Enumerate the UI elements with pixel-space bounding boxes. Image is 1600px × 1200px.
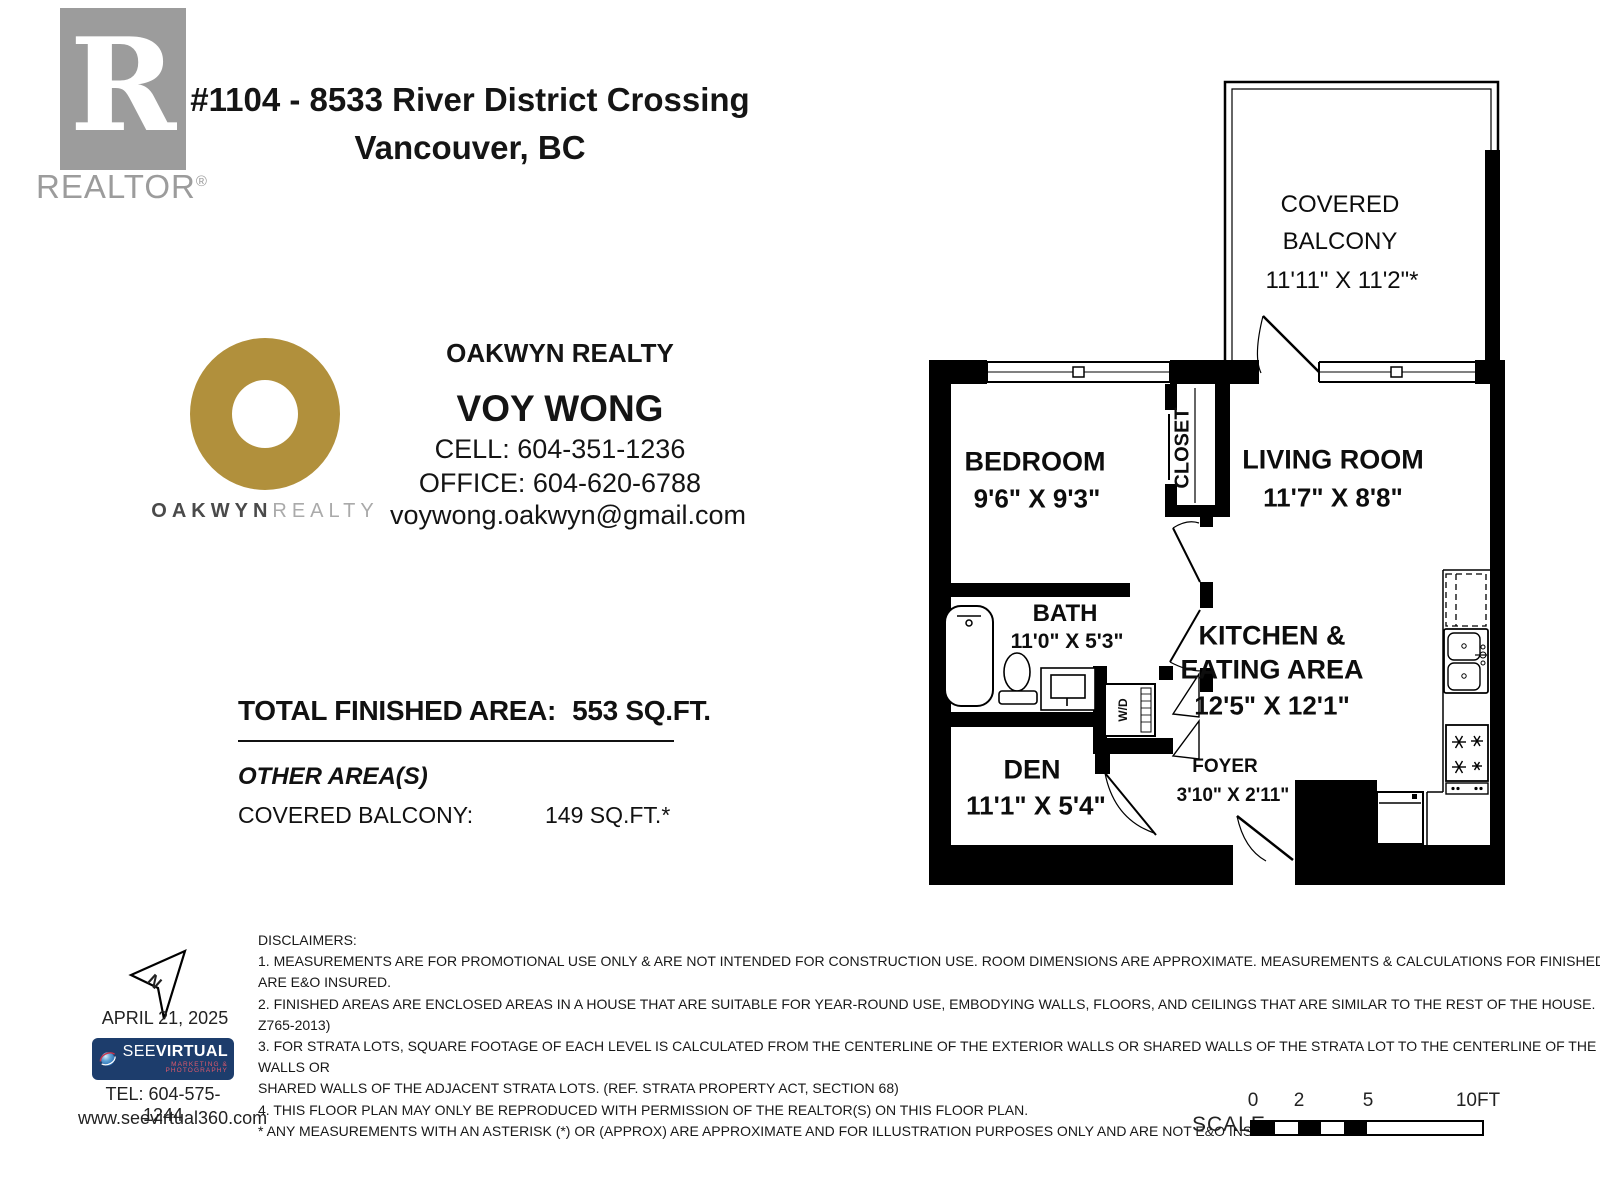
washer-dryer-label: W/D: [1116, 698, 1130, 721]
bath-label: BATH: [1033, 600, 1098, 628]
disclaimer-line: WALLS OR: [258, 1057, 1600, 1078]
registered-mark: ®: [196, 173, 208, 190]
agent-office-phone: OFFICE: 604-620-6788: [390, 468, 730, 499]
disclaimer-line: DISCLAIMERS:: [258, 930, 1600, 951]
floorplan-flyer: { "header": { "realtor_letter": "R", "re…: [0, 0, 1600, 1200]
disclaimer-line: Z765-2013): [258, 1015, 1600, 1036]
listing-city: Vancouver, BC: [170, 124, 770, 172]
seevirtual-swoosh-icon: [98, 1043, 118, 1075]
den-label: DEN: [1003, 755, 1060, 786]
scale-tick-2: 2: [1294, 1090, 1305, 1112]
other-areas-heading: OTHER AREA(S): [238, 763, 428, 791]
balcony-label-1: COVERED: [1281, 191, 1400, 219]
scale-segment: [1344, 1122, 1367, 1134]
kitchen-cabinet: [1446, 574, 1486, 626]
closet-label: CLOSET: [1172, 407, 1195, 488]
seevirtual-logo: SEEVIRTUAL MARKETING & PHOTOGRAPHY: [92, 1038, 234, 1080]
bathtub: [945, 606, 993, 706]
foyer-label: FOYER: [1192, 756, 1257, 778]
disclaimers: DISCLAIMERS: 1. MEASUREMENTS ARE FOR PRO…: [258, 930, 1600, 1142]
total-area-value: 553 SQ.FT.: [572, 695, 711, 726]
scale-tick-0: 0: [1248, 1090, 1259, 1112]
realtor-logo: R: [60, 8, 186, 170]
kitchen-label-2: EATING AREA: [1180, 655, 1363, 686]
floorplan: COVERED BALCONY 11'11" X 11'2"* BEDROOM …: [915, 70, 1505, 885]
bedroom-label: BEDROOM: [965, 447, 1106, 478]
covered-balcony-label: COVERED BALCONY:: [238, 802, 473, 829]
bedroom-dims: 9'6" X 9'3": [974, 484, 1101, 515]
entry-door: [1237, 816, 1293, 861]
washer-dryer: [1105, 684, 1155, 736]
scale-tick-10ft: 10FT: [1456, 1090, 1500, 1112]
covered-balcony-value: 149 SQ.FT.*: [545, 802, 670, 829]
bath-dims: 11'0" X 5'3": [1011, 630, 1124, 654]
listing-title: #1104 - 8533 River District Crossing Van…: [170, 76, 770, 172]
toilet: [999, 653, 1037, 704]
listing-address: #1104 - 8533 River District Crossing: [170, 76, 770, 124]
fridge: [1377, 792, 1423, 844]
disclaimer-line: SHARED WALLS OF THE ADJACENT STRATA LOTS…: [258, 1078, 1600, 1099]
agent-cell-phone: CELL: 604-351-1236: [390, 434, 730, 465]
scale-tick-5: 5: [1363, 1090, 1374, 1112]
scale-segment: [1298, 1122, 1321, 1134]
flyer-date: APRIL 21, 2025: [100, 1008, 230, 1029]
disclaimer-line: 4. THIS FLOOR PLAN MAY ONLY BE REPRODUCE…: [258, 1100, 1600, 1121]
den-door: [1105, 773, 1156, 835]
balcony-door: [1257, 316, 1319, 373]
oakwyn-logo-icon: [190, 338, 340, 490]
disclaimer-line: ARE E&O INSURED.: [258, 972, 1600, 993]
scale-bar: [1250, 1120, 1484, 1136]
disclaimer-line: 2. FINISHED AREAS ARE ENCLOSED AREAS IN …: [258, 994, 1600, 1015]
bedroom-window: [987, 360, 1170, 384]
total-area-label: TOTAL FINISHED AREA:: [238, 695, 556, 726]
balcony-dims: 11'11" X 11'2"*: [1266, 267, 1419, 295]
disclaimer-line: 3. FOR STRATA LOTS, SQUARE FOOTAGE OF EA…: [258, 1036, 1600, 1057]
total-area-line: TOTAL FINISHED AREA:553 SQ.FT.: [238, 695, 711, 727]
bedroom-door: [1173, 522, 1200, 582]
vendor-name-see: SEE: [123, 1043, 156, 1060]
balcony-label-2: BALCONY: [1283, 228, 1398, 256]
oakwyn-wordmark: OAKWYNREALTY: [130, 500, 400, 523]
realtor-wordmark: REALTOR®: [22, 168, 222, 206]
kitchen-counter: [1427, 570, 1490, 845]
vendor-website: www.seevirtual360.com: [78, 1108, 248, 1129]
vendor-name-virtual: VIRTUAL: [156, 1043, 228, 1060]
stove: [1446, 725, 1488, 794]
living-room-window: [1319, 360, 1475, 384]
kitchen-dims: 12'5" X 12'1": [1194, 691, 1350, 722]
living-room-label: LIVING ROOM: [1242, 445, 1424, 476]
scale-segment: [1252, 1122, 1275, 1134]
foyer-dims: 3'10" X 2'11": [1177, 785, 1290, 807]
kitchen-label-1: KITCHEN &: [1199, 621, 1346, 652]
vendor-tagline: MARKETING & PHOTOGRAPHY: [123, 1062, 228, 1075]
agent-name: VOY WONG: [390, 388, 730, 430]
bathroom-sink: [1041, 668, 1095, 710]
disclaimer-line: 1. MEASUREMENTS ARE FOR PROMOTIONAL USE …: [258, 951, 1600, 972]
kitchen-sink: [1444, 629, 1488, 693]
agent-brand: OAKWYN REALTY: [390, 338, 730, 369]
agent-email: voywong.oakwyn@gmail.com: [390, 500, 730, 531]
total-area-underline: [238, 740, 674, 742]
realtor-logo-letter: R: [70, 22, 176, 150]
living-room-dims: 11'7" X 8'8": [1263, 483, 1403, 514]
den-dims: 11'1" X 5'4": [966, 791, 1106, 822]
